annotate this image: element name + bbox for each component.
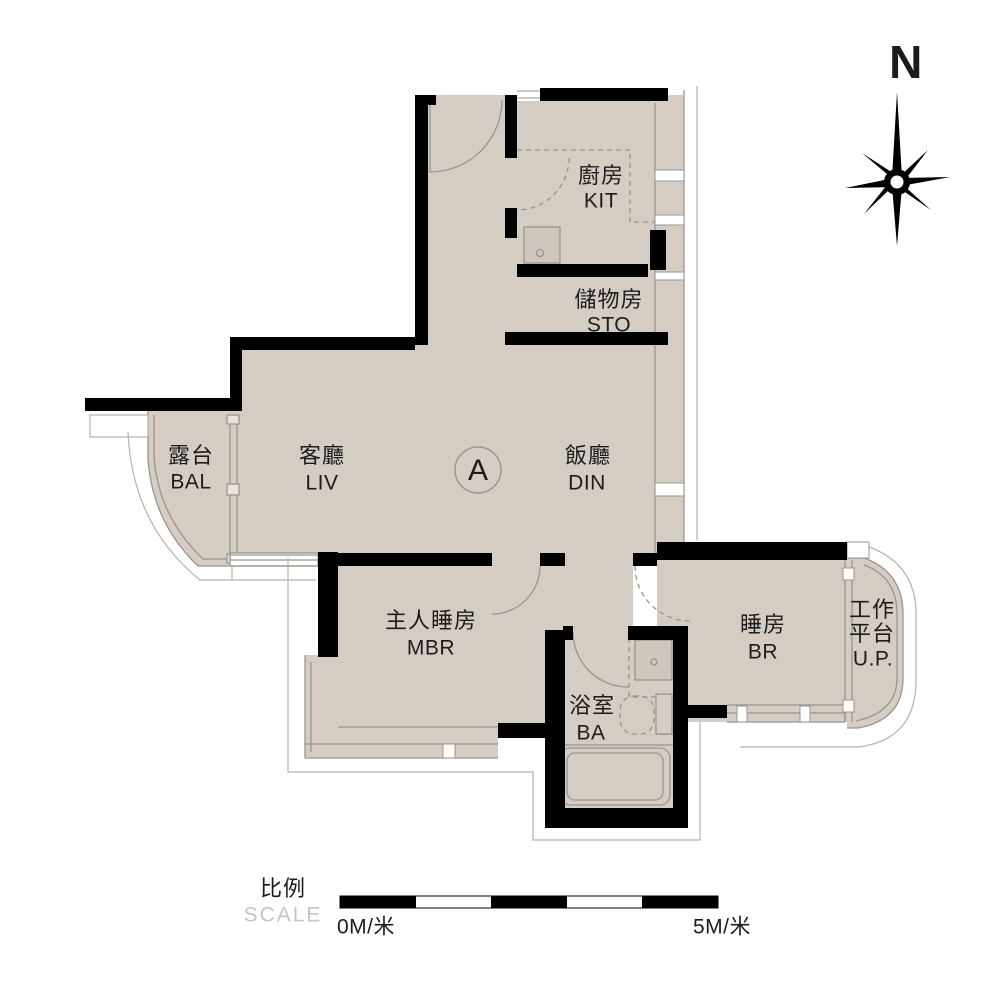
kitchen-label-en: KIT — [584, 191, 618, 212]
balcony-label-en: BAL — [170, 472, 211, 493]
dining-label-en: DIN — [568, 473, 606, 494]
scale-end-label: 5M/米 — [693, 917, 751, 938]
kitchen-label-zh: 廚房 — [578, 165, 624, 187]
utility-platform-label-zh2: 平台 — [849, 623, 895, 645]
scale-label-en: SCALE — [244, 905, 323, 926]
floor-areas — [148, 95, 903, 810]
living-label-en: LIV — [305, 473, 338, 494]
north-compass-icon — [845, 92, 950, 246]
scale-bar — [340, 896, 718, 908]
living-label-zh: 客廳 — [299, 445, 345, 467]
scale-start-label: 0M/米 — [337, 917, 395, 938]
kitchen-top-window — [517, 88, 540, 101]
bathroom-label-en: BA — [576, 723, 605, 744]
storage-label-en: STO — [587, 315, 631, 336]
floor-plan-drawing — [0, 0, 1000, 1001]
utility-platform-label-zh1: 工作 — [849, 599, 895, 621]
master-bedroom-label-zh: 主人睡房 — [385, 610, 477, 632]
floor-plan-page: 廚房 KIT 儲物房 STO 露台 BAL 客廳 LIV 飯廳 DIN A 主人… — [0, 0, 1000, 1001]
balcony-label-zh: 露台 — [168, 445, 214, 467]
bathroom-label-zh: 浴室 — [569, 695, 615, 717]
bedroom-label-zh: 睡房 — [740, 614, 786, 636]
scale-label-zh: 比例 — [260, 878, 306, 900]
bedroom-label-en: BR — [748, 642, 778, 663]
dining-label-zh: 飯廳 — [565, 445, 611, 467]
master-bedroom-label-en: MBR — [407, 638, 455, 659]
utility-platform-label-en: U.P. — [853, 649, 893, 670]
storage-label-zh: 儲物房 — [574, 289, 643, 311]
unit-marker-label: A — [468, 456, 488, 486]
north-label: N — [889, 39, 923, 85]
